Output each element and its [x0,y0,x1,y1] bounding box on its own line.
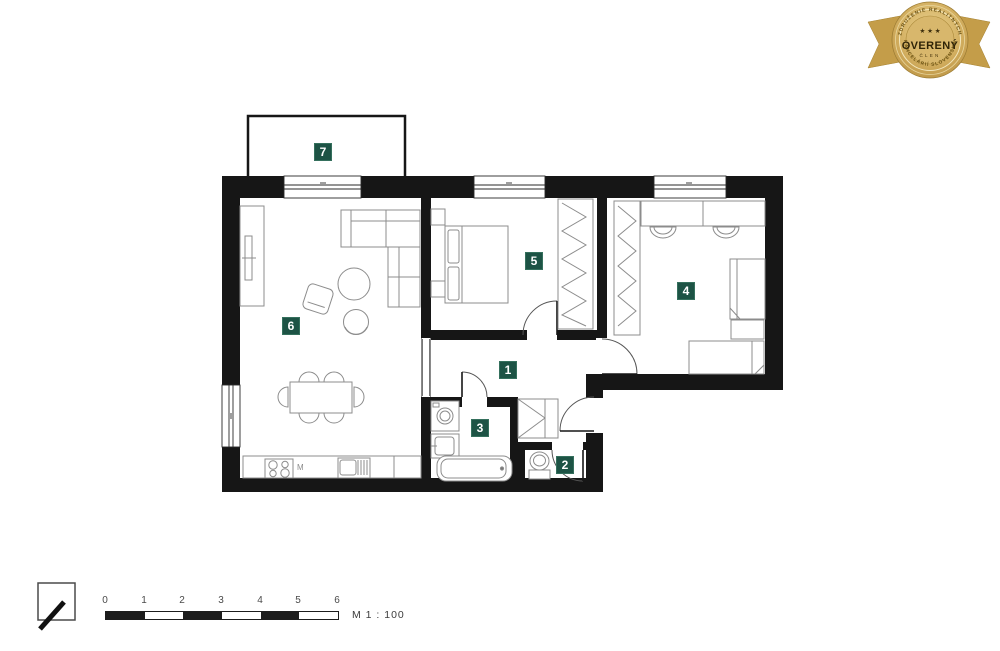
nightstand [431,281,445,297]
room-label-7: 7 [314,143,332,161]
orientation-indicator [35,581,81,633]
bed-single [730,259,765,319]
floor-plan [0,0,1000,651]
compass-needle-icon [40,602,64,629]
compass-box [38,583,75,620]
canvas-background [0,0,1000,651]
closet [518,399,558,438]
nightstand [731,320,764,339]
wardrobe [558,199,593,329]
membership-badge: ZDRUŽENIE REALITNÝCH KANCELÁRIÍ SLOVENSK… [858,0,1000,84]
tv-cabinet [240,206,264,306]
badge-subtitle: ČLEN [919,52,940,58]
stove-icon [265,459,293,478]
bathtub [437,456,512,481]
badge-title: OVERENÝ [902,39,959,52]
window-icon [654,176,726,198]
kitchen-counter [243,456,421,478]
room-label-1: 1 [499,361,517,379]
kitchen-appliance-label: M [297,463,304,472]
room-label-5: 5 [525,252,543,270]
bathroom-sink [431,434,459,458]
room-label-6: 6 [282,317,300,335]
nightstand [431,209,445,225]
desk [641,201,765,226]
window-icon [284,176,361,198]
pouf [344,310,369,335]
page: 1 2 3 4 5 6 7 M 0 1 2 3 4 5 6 M 1 : 100 [0,0,1000,651]
coffee-table [338,268,370,300]
window-icon [222,385,240,447]
washing-machine [431,401,459,431]
room-label-2: 2 [556,456,574,474]
badge-stars-icon: ★ ★ ★ [919,27,940,35]
room-label-4: 4 [677,282,695,300]
bed-double [445,226,508,303]
toilet [529,452,550,479]
bed-single [689,341,764,374]
window-icon [474,176,545,198]
wardrobe [614,201,640,335]
room-label-3: 3 [471,419,489,437]
kitchen-sink-icon [338,458,370,478]
